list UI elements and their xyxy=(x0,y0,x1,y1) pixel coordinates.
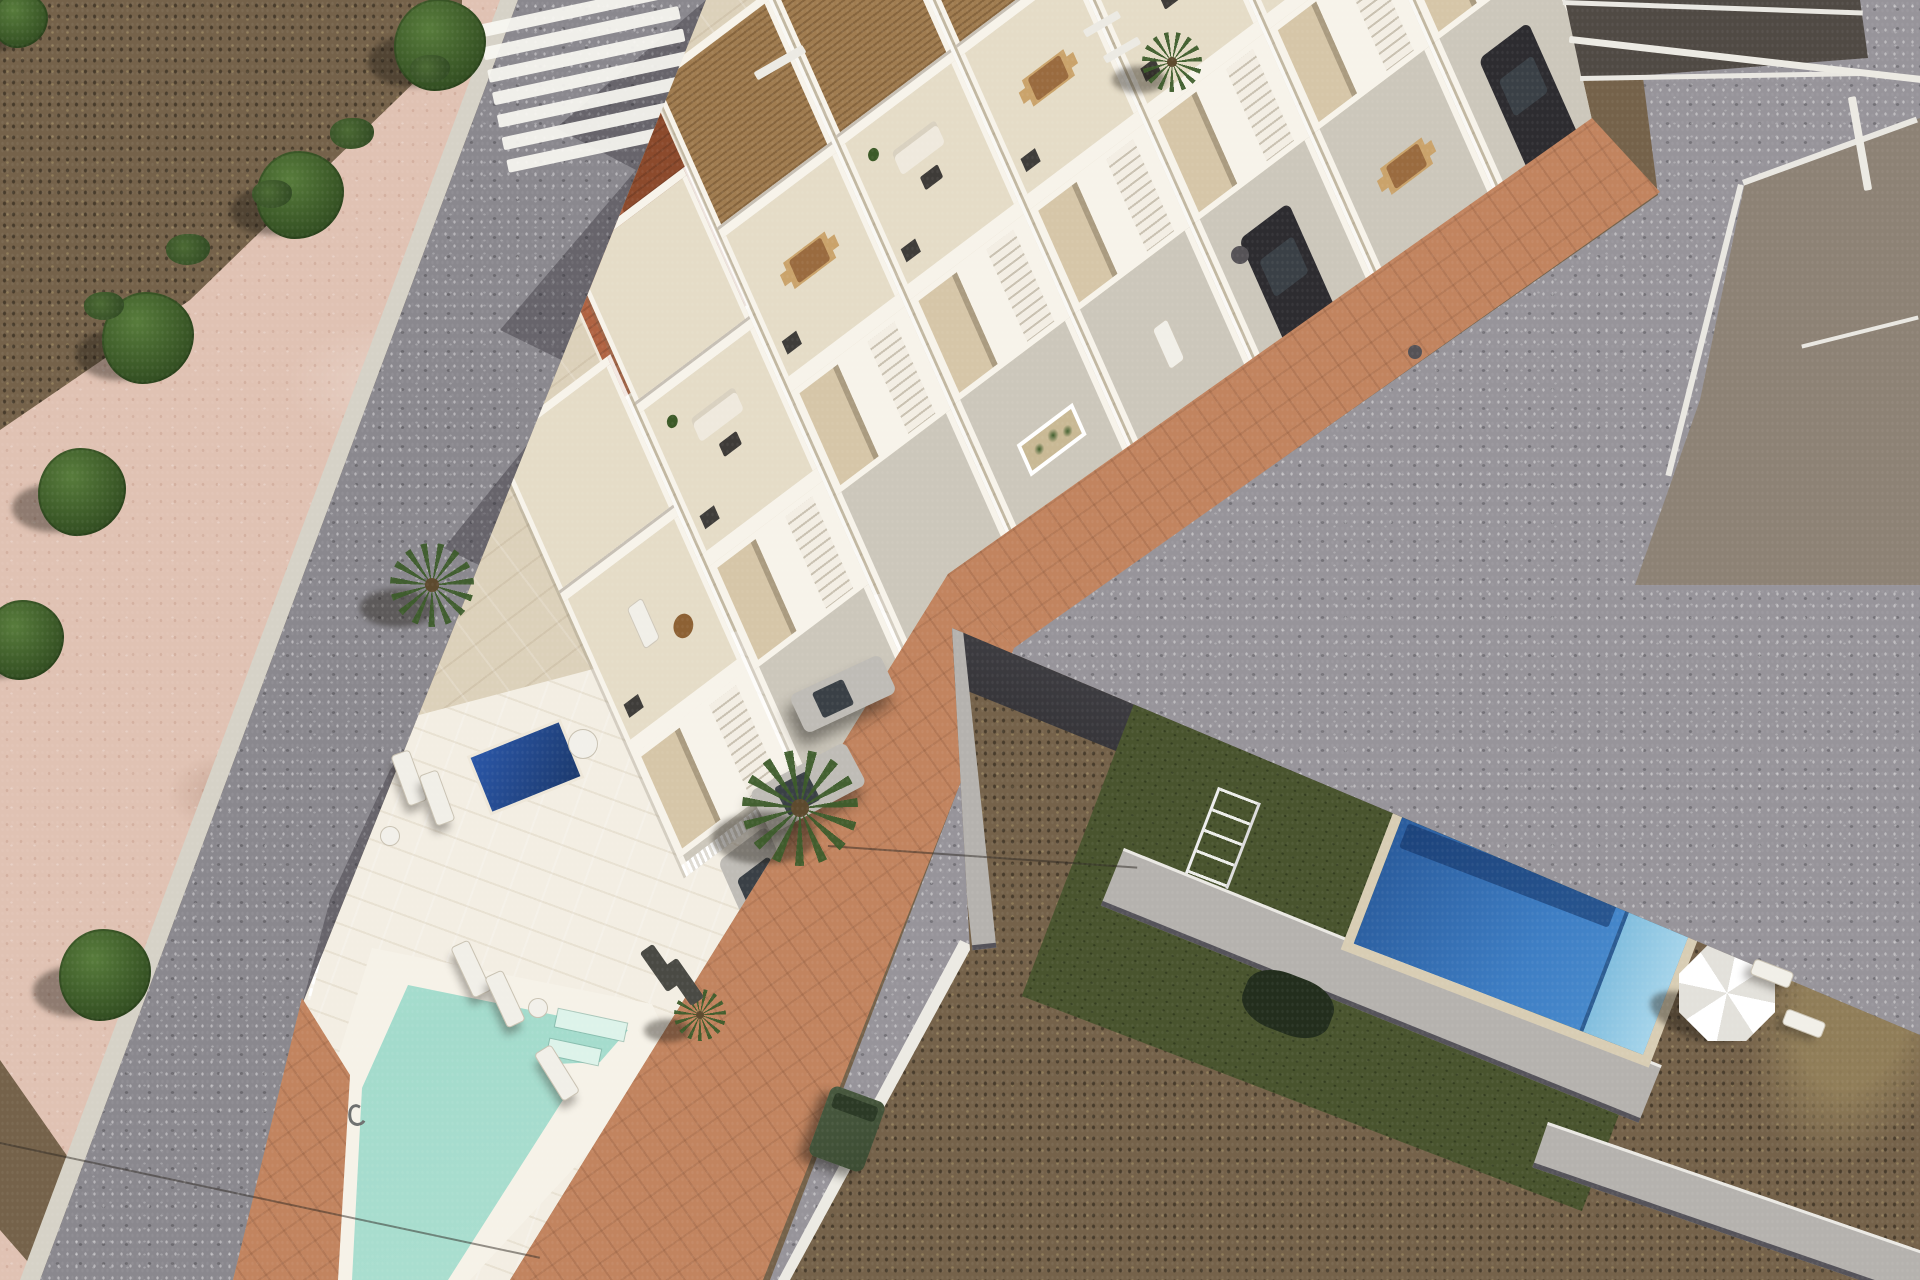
sun-lounger xyxy=(628,599,659,649)
manhole-cover xyxy=(1231,246,1249,264)
bbq-corner xyxy=(1021,148,1041,172)
coffee-table xyxy=(1159,0,1182,10)
dining-set xyxy=(789,237,831,284)
dining-set xyxy=(1386,143,1428,190)
aerial-development-render xyxy=(0,0,1920,1280)
car-glass xyxy=(1498,55,1548,117)
palm-tree xyxy=(1142,32,1202,92)
bbq-corner xyxy=(901,238,921,262)
shrub xyxy=(166,234,210,265)
plant-pot xyxy=(866,145,881,163)
coffee-table xyxy=(719,431,742,457)
side-table xyxy=(529,999,547,1017)
side-table xyxy=(569,730,597,758)
side-table xyxy=(381,827,399,845)
palm-planter xyxy=(1017,403,1087,477)
plant-pot xyxy=(665,412,680,430)
palm-tree xyxy=(742,750,858,866)
sun-lounger xyxy=(1153,319,1184,369)
car-glass xyxy=(812,679,855,719)
staircase xyxy=(1346,0,1414,71)
dining-set xyxy=(1027,55,1069,102)
round-table xyxy=(670,609,697,643)
bbq-corner xyxy=(624,694,644,718)
bbq-corner xyxy=(700,505,720,529)
shrub xyxy=(330,118,374,149)
coffee-table xyxy=(920,164,943,190)
car-glass xyxy=(1259,235,1309,297)
bbq-corner xyxy=(782,331,802,355)
palm-tree xyxy=(390,543,474,627)
manhole-cover xyxy=(1408,345,1422,359)
